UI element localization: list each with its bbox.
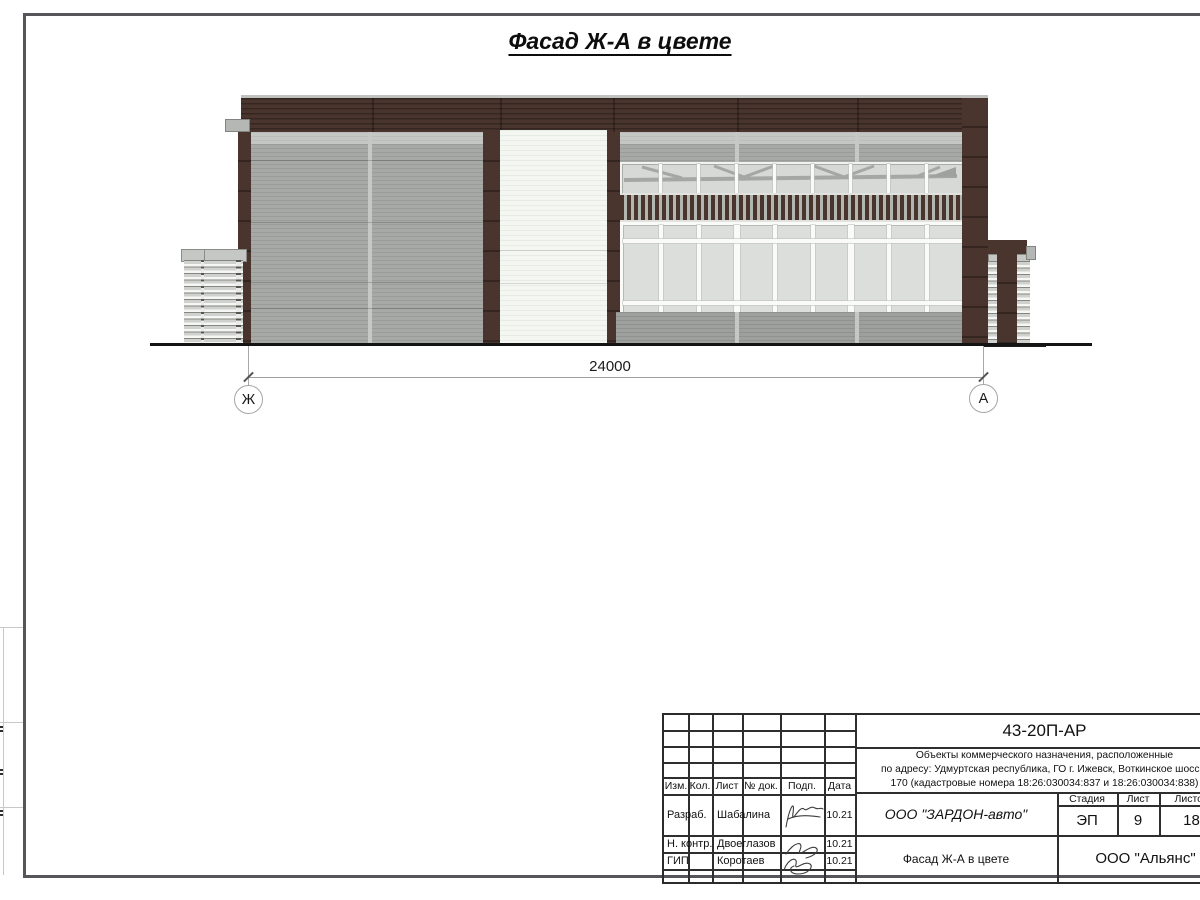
tb-address-line: по адресу: Удмуртская республика, ГО г. … xyxy=(855,763,1200,777)
gate-joint xyxy=(500,250,607,251)
tb-sheets-value: 18 xyxy=(1159,805,1200,835)
facade-elevation: 24000 Ж А xyxy=(0,0,1200,420)
tb-date: 10.21 xyxy=(824,835,855,852)
panel-divider xyxy=(735,312,739,343)
panel-joint xyxy=(500,98,502,132)
louver-band xyxy=(620,193,962,222)
tb-name: Двоеглазов xyxy=(714,835,783,852)
gutter-outlet xyxy=(225,119,250,132)
tb-sheet-value: 9 xyxy=(1117,805,1159,835)
annex-column xyxy=(997,254,1017,343)
panel-divider xyxy=(368,132,372,343)
wall-panels-left xyxy=(251,132,483,343)
window-mullion xyxy=(849,164,852,195)
tb-date: 10.21 xyxy=(824,794,855,835)
clerestory-windows xyxy=(620,162,966,197)
tb-address-line: 170 (кадастровые номера 18:26:030034:837… xyxy=(855,777,1200,791)
tb-line xyxy=(664,869,855,871)
tb-company: ООО "ЗАРДОН-авто" xyxy=(855,792,1057,835)
panel-joint xyxy=(857,98,859,132)
tb-sheet-label: Лист xyxy=(1117,792,1159,805)
tb-col-izm: Изм. xyxy=(664,777,688,794)
window-transom xyxy=(623,239,965,243)
window-transom xyxy=(623,301,965,305)
tb-role: Разраб. xyxy=(664,794,715,835)
panel-joint xyxy=(251,222,483,223)
signature xyxy=(780,836,824,880)
tb-sheets-label: Листов xyxy=(1159,792,1200,805)
tb-org: ООО "Альянс" xyxy=(1057,835,1200,882)
tb-line xyxy=(664,762,855,764)
extension-line xyxy=(248,346,249,390)
wall-top-strip xyxy=(620,132,962,144)
tb-col-podp: Подп. xyxy=(780,777,824,794)
corner-column-right xyxy=(962,98,988,343)
tb-address-line: Объекты коммерческого назначения, распол… xyxy=(855,749,1200,763)
signature xyxy=(782,797,824,833)
tb-drawing-title: Фасад Ж-А в цвете xyxy=(855,835,1057,882)
panel-joint xyxy=(372,98,374,132)
tb-line xyxy=(664,746,855,748)
panel-divider xyxy=(855,312,859,343)
window-mullion xyxy=(773,164,776,195)
tb-stage-label: Стадия xyxy=(1057,792,1117,805)
tb-date: 10.21 xyxy=(824,852,855,869)
tb-role: Н. контр. xyxy=(664,835,715,852)
cornice-band xyxy=(241,98,962,134)
tb-col-data: Дата xyxy=(824,777,855,794)
ground-line xyxy=(150,343,1092,346)
tb-project-address: Объекты коммерческого назначения, распол… xyxy=(855,749,1200,791)
panel-joint xyxy=(251,160,483,161)
panel-joint xyxy=(613,98,615,132)
tb-line xyxy=(664,730,855,732)
window-mullion xyxy=(811,164,814,195)
panel-divider xyxy=(855,132,859,162)
roof-truss-silhouette xyxy=(622,164,959,190)
sheet-margin-line xyxy=(0,627,23,628)
louver-fence xyxy=(184,260,243,343)
tb-stage-value: ЭП xyxy=(1057,805,1117,835)
title-block: Изм. Кол. Лист № док. Подп. Дата Разраб.… xyxy=(662,713,1200,884)
base-band xyxy=(616,312,962,343)
window-grid xyxy=(620,222,968,318)
tb-doc-number: 43-20П-АР xyxy=(855,715,1200,747)
axis-marker-left: Ж xyxy=(234,385,263,414)
axis-marker-right: А xyxy=(969,384,998,413)
fence-post xyxy=(201,260,204,343)
gate xyxy=(500,130,607,343)
tb-col-kol: Кол. xyxy=(688,777,712,794)
panel-joint xyxy=(251,282,483,283)
tb-role: ГИП xyxy=(664,852,715,869)
window-mullion xyxy=(925,164,928,195)
window-mullion xyxy=(659,164,662,195)
fence-post xyxy=(236,260,241,343)
gate-joint xyxy=(500,283,607,284)
panel-divider xyxy=(735,132,739,162)
drawing-sheet: Фасад Ж-А в цвете xyxy=(0,0,1200,900)
dimension-value: 24000 xyxy=(560,358,660,375)
window-mullion xyxy=(735,164,738,195)
panel-joint xyxy=(251,308,483,309)
wall-band-top-right xyxy=(620,132,962,162)
window-mullion xyxy=(887,164,890,195)
panel-joint xyxy=(737,98,739,132)
pilaster xyxy=(483,132,500,343)
dimension-line xyxy=(248,377,983,378)
tb-name: Коротаев xyxy=(714,852,783,869)
tb-col-ndok: № док. xyxy=(742,777,780,794)
wall-top-strip xyxy=(251,132,483,144)
tb-name: Шабалина xyxy=(714,794,783,835)
tb-col-list: Лист xyxy=(712,777,742,794)
annex-corner-cap xyxy=(1026,246,1036,260)
window-mullion xyxy=(697,164,700,195)
legend: - Стены: сэндвич-панели, цоколь: отлив; … xyxy=(0,700,560,870)
